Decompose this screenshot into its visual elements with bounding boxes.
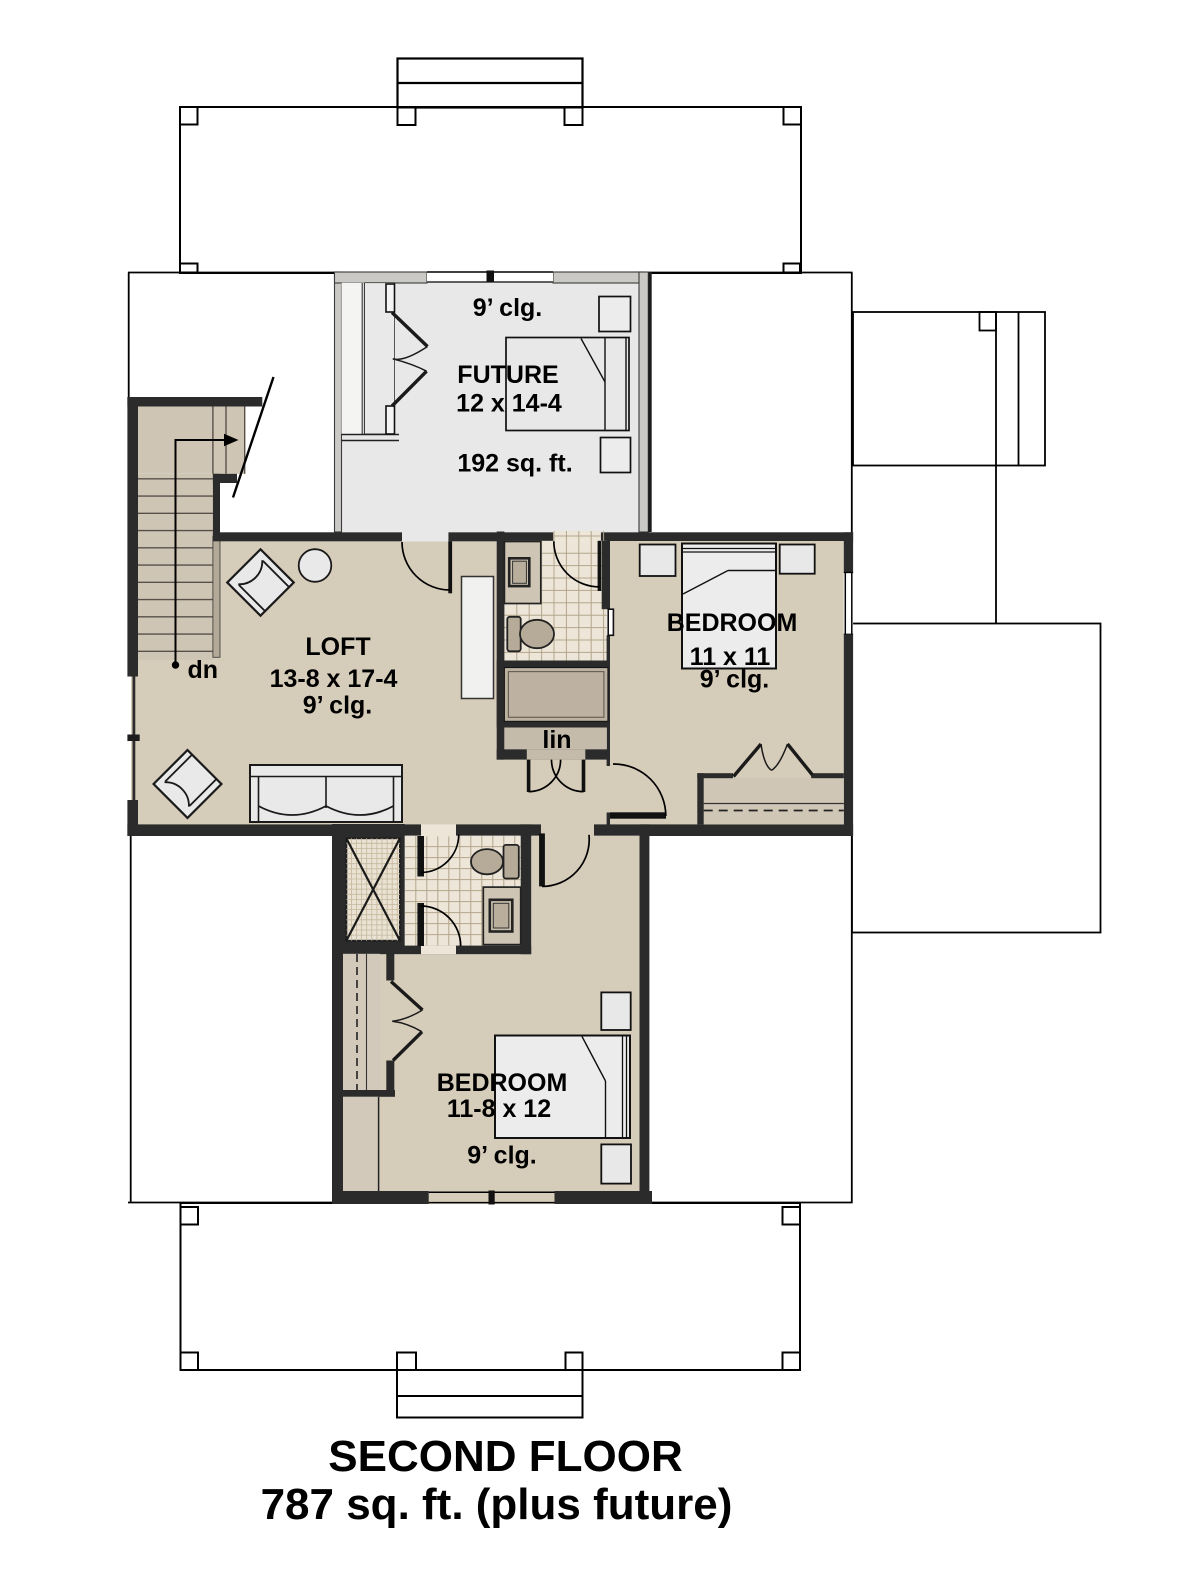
svg-text:9’ clg.: 9’ clg.	[303, 692, 372, 720]
svg-text:LOFT: LOFT	[305, 633, 370, 661]
svg-text:dn: dn	[188, 656, 219, 684]
svg-text:787 sq. ft. (plus future): 787 sq. ft. (plus future)	[261, 1480, 733, 1529]
svg-text:FUTURE: FUTURE	[457, 361, 558, 389]
svg-text:9’ clg.: 9’ clg.	[467, 1142, 536, 1170]
svg-text:BEDROOM: BEDROOM	[667, 609, 798, 637]
svg-text:BEDROOM: BEDROOM	[437, 1069, 568, 1097]
svg-text:12 x 14-4: 12 x 14-4	[456, 390, 562, 418]
svg-text:SECOND FLOOR: SECOND FLOOR	[328, 1432, 682, 1481]
svg-text:13-8 x 17-4: 13-8 x 17-4	[270, 665, 398, 693]
svg-text:192 sq. ft.: 192 sq. ft.	[457, 450, 572, 478]
svg-text:9’ clg.: 9’ clg.	[473, 294, 542, 322]
svg-text:11-8 x 12: 11-8 x 12	[447, 1095, 551, 1123]
svg-text:9’ clg.: 9’ clg.	[700, 666, 769, 694]
